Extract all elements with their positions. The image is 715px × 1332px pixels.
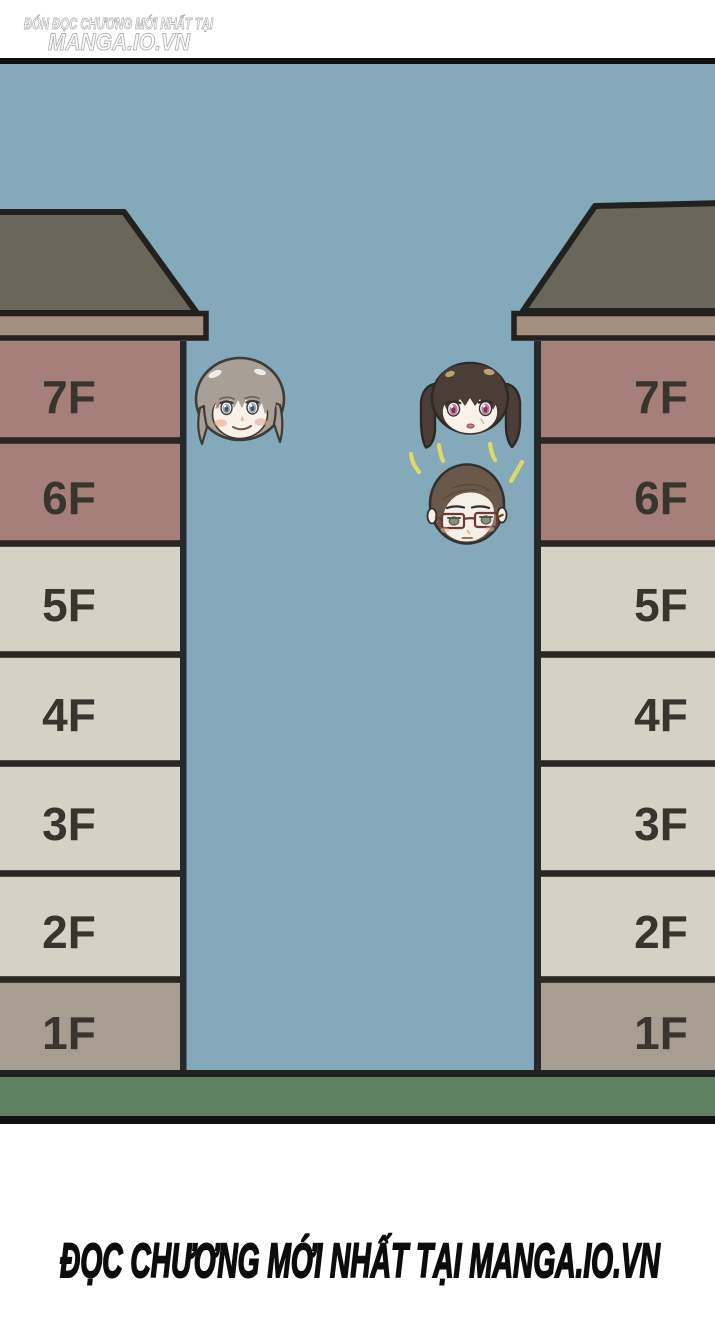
svg-text:3F: 3F: [42, 798, 96, 850]
svg-text:1F: 1F: [42, 1007, 96, 1059]
svg-text:7F: 7F: [42, 371, 96, 423]
svg-text:3F: 3F: [634, 798, 688, 850]
svg-text:4F: 4F: [634, 689, 688, 741]
svg-text:5F: 5F: [42, 579, 96, 631]
svg-text:6F: 6F: [634, 472, 688, 524]
svg-text:ĐỌC CHƯƠNG MỚI NHẤT TẠI MANGA.: ĐỌC CHƯƠNG MỚI NHẤT TẠI MANGA.IO.VN: [60, 1233, 661, 1288]
svg-text:MANGA.IO.VN: MANGA.IO.VN: [48, 29, 191, 56]
svg-text:7F: 7F: [634, 371, 688, 423]
svg-text:2F: 2F: [634, 906, 688, 958]
svg-text:1F: 1F: [634, 1007, 688, 1059]
svg-text:2F: 2F: [42, 906, 96, 958]
svg-text:6F: 6F: [42, 472, 96, 524]
svg-text:5F: 5F: [634, 579, 688, 631]
svg-text:4F: 4F: [42, 689, 96, 741]
